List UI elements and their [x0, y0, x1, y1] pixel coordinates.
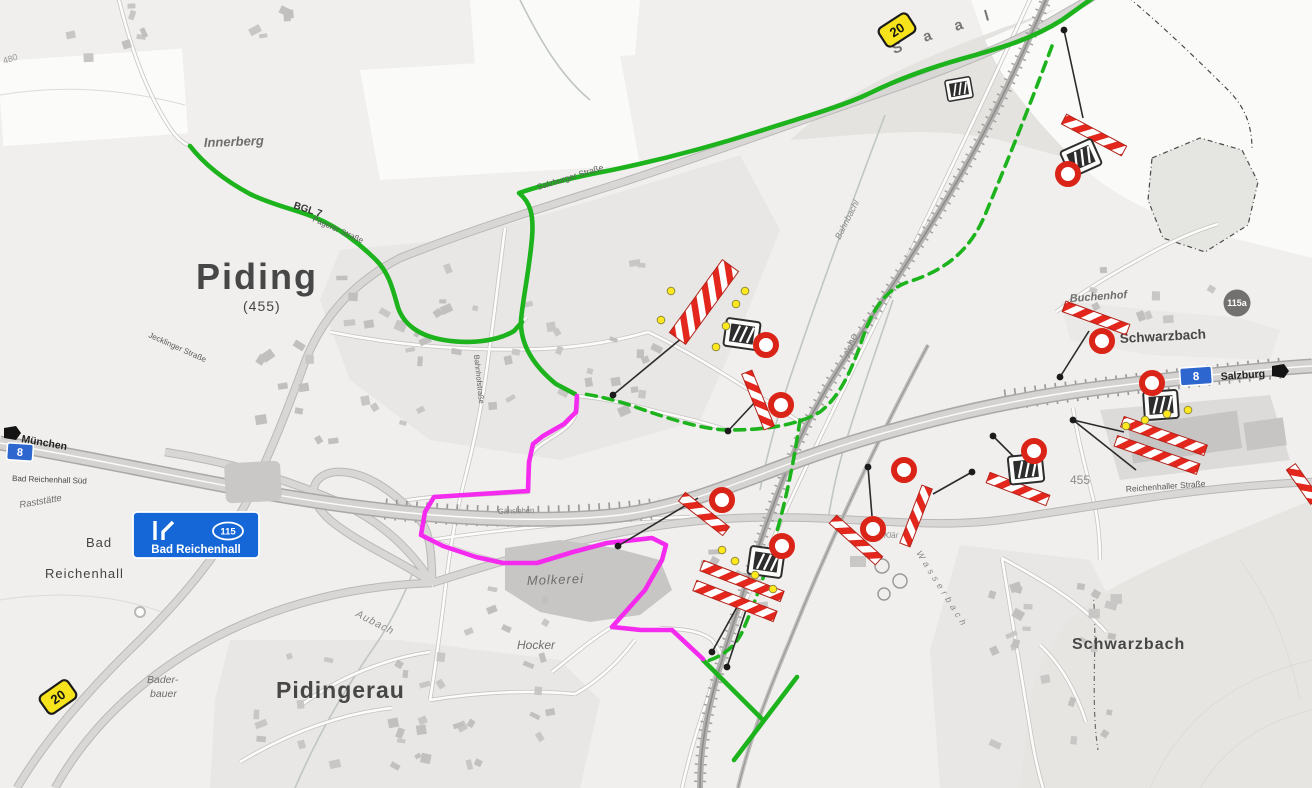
label-pidingerau: Pidingerau — [276, 677, 405, 703]
no-entry-icon — [771, 395, 791, 415]
label-klaeranlage: Klär — [884, 531, 899, 540]
no-entry-icon — [894, 460, 914, 480]
no-entry-icon — [863, 519, 883, 539]
closure-board-icon — [945, 76, 974, 101]
map-background-zones — [0, 0, 1312, 788]
label-innerberg: Innerberg — [204, 133, 264, 150]
a8-shield-east-icon: 8 — [1179, 366, 1212, 386]
label-hocker: Hocker — [517, 638, 556, 652]
no-entry-icon — [1058, 164, 1078, 184]
roundabout — [135, 607, 145, 617]
label-schwarzbach-south: Schwarzbach — [1072, 636, 1185, 653]
no-entry-icon — [712, 490, 732, 510]
label-reichenhall: Reichenhall — [45, 566, 124, 581]
map-canvas: Piding (455) Innerberg BGL 7 Pagerer Str… — [0, 0, 1312, 788]
a8-shield-west-icon: 8 — [6, 443, 33, 462]
label-gaenslehen: Gänslehen — [498, 506, 535, 516]
label-piding-elevation: (455) — [243, 298, 281, 314]
exit-panel-number: 115 — [220, 527, 236, 538]
label-bad: Bad — [86, 535, 112, 550]
no-entry-icon — [1024, 441, 1044, 461]
no-entry-icon — [1142, 373, 1162, 393]
no-entry-icon — [1092, 331, 1112, 351]
label-baderbauer-1: Bader- — [147, 674, 179, 686]
label-molkerei: Molkerei — [527, 571, 585, 588]
svg-text:8: 8 — [16, 447, 23, 459]
st115a-badge-icon: 115a — [1224, 290, 1251, 317]
svg-text:115a: 115a — [1227, 298, 1248, 308]
motorway-exit-panel: 115 Bad Reichenhall — [133, 512, 259, 558]
no-entry-icon — [756, 335, 776, 355]
label-elevation-455: 455 — [1070, 473, 1090, 487]
map-screenshot: Piding (455) Innerberg BGL 7 Pagerer Str… — [0, 0, 1312, 788]
label-baderbauer-2: bauer — [150, 688, 177, 700]
no-entry-icon — [772, 536, 792, 556]
label-piding: Piding — [196, 256, 318, 297]
exit-panel-destination: Bad Reichenhall — [151, 544, 240, 556]
